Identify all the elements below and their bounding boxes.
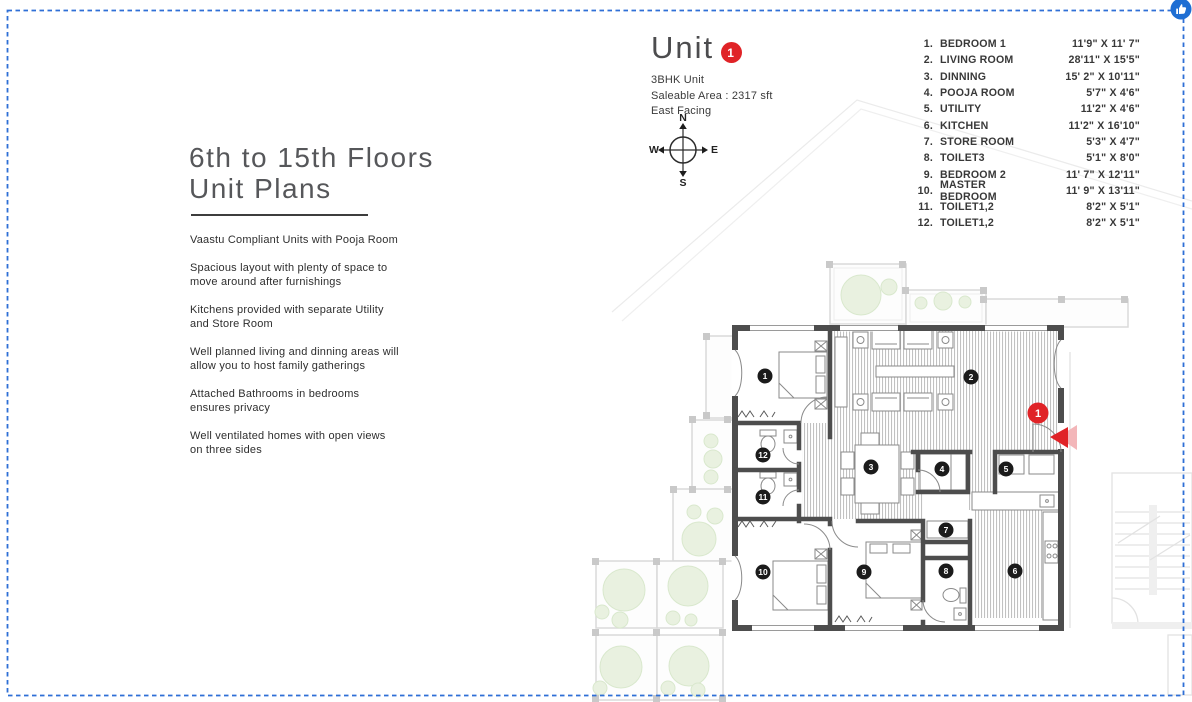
table-row: 1.BEDROOM 111'9" X 11' 7" <box>893 36 1140 52</box>
room-number: 1. <box>893 38 940 50</box>
room-number: 11. <box>893 201 940 213</box>
svg-text:6: 6 <box>1013 566 1018 576</box>
room-number: 9. <box>893 169 940 181</box>
svg-text:4: 4 <box>940 464 945 474</box>
room-name: LIVING ROOM <box>940 54 1045 66</box>
compass-icon: N S W E <box>647 110 719 188</box>
room-number: 5. <box>893 103 940 115</box>
room-number: 8. <box>893 152 940 164</box>
table-row: 10.MASTER BEDROOM11' 9" X 13'11" <box>893 183 1140 199</box>
svg-text:8: 8 <box>944 566 949 576</box>
room-name: POOJA ROOM <box>940 87 1045 99</box>
compass-east-label: E <box>711 144 718 156</box>
room-dims: 11'2" X 16'10" <box>1045 120 1140 132</box>
svg-text:1: 1 <box>763 371 768 381</box>
room-number: 2. <box>893 54 940 66</box>
room-name: MASTER BEDROOM <box>940 179 1045 203</box>
compass-north-label: N <box>679 112 687 124</box>
room-dims: 5'1" X 8'0" <box>1045 152 1140 164</box>
room-dims: 15' 2" X 10'11" <box>1045 71 1140 83</box>
room-name: BEDROOM 1 <box>940 38 1045 50</box>
unit-saleable-area: Saleable Area : 2317 sft <box>651 89 773 105</box>
table-row: 8.TOILET35'1" X 8'0" <box>893 150 1140 166</box>
room-dims: 28'11" X 15'5" <box>1045 54 1140 66</box>
room-number: 6. <box>893 120 940 132</box>
compass-west-label: W <box>649 144 659 156</box>
room-name: TOILET3 <box>940 152 1045 164</box>
stair-lobby <box>1070 352 1192 695</box>
room-name: TOILET1,2 <box>940 217 1045 229</box>
room-dims: 11' 9" X 13'11" <box>1045 185 1140 197</box>
floor-plan: 123456789101112 1 <box>590 258 1192 702</box>
room-dims: 5'3" X 4'7" <box>1045 136 1140 148</box>
room-name: STORE ROOM <box>940 136 1045 148</box>
room-name: DINNING <box>940 71 1045 83</box>
room-number: 4. <box>893 87 940 99</box>
svg-text:2: 2 <box>969 372 974 382</box>
room-number: 3. <box>893 71 940 83</box>
room-number: 7. <box>893 136 940 148</box>
table-row: 3.DINNING15' 2" X 10'11" <box>893 69 1140 85</box>
feature-item: Well planned living and dinning areas wi… <box>190 345 400 373</box>
svg-text:9: 9 <box>862 567 867 577</box>
table-row: 6.KITCHEN11'2" X 16'10" <box>893 117 1140 133</box>
svg-text:1: 1 <box>1035 408 1041 420</box>
svg-text:12: 12 <box>758 450 768 460</box>
brochure-page: { "colors": { "border_blue": "#2e6fd6", … <box>0 0 1192 702</box>
room-dims: 5'7" X 4'6" <box>1045 87 1140 99</box>
room-name: KITCHEN <box>940 120 1045 132</box>
room-number: 10. <box>893 185 940 197</box>
svg-text:10: 10 <box>758 567 768 577</box>
room-dims: 11'2" X 4'6" <box>1045 103 1140 115</box>
room-name: UTILITY <box>940 103 1045 115</box>
table-row: 12.TOILET1,28'2" X 5'1" <box>893 215 1140 231</box>
table-row: 4.POOJA ROOM5'7" X 4'6" <box>893 85 1140 101</box>
master-bedroom-furniture <box>773 549 828 610</box>
page-title: 6th to 15th Floors Unit Plans <box>189 142 434 204</box>
table-row: 11.TOILET1,28'2" X 5'1" <box>893 199 1140 215</box>
svg-text:11: 11 <box>759 492 768 502</box>
room-dims: 8'2" X 5'1" <box>1045 201 1140 213</box>
title-underline <box>191 214 368 216</box>
unit-header: Unit 1 3BHK Unit Saleable Area : 2317 sf… <box>651 30 773 120</box>
bedroom1-furniture <box>779 341 827 409</box>
room-name: TOILET1,2 <box>940 201 1045 213</box>
unit-type: 3BHK Unit <box>651 73 773 89</box>
room-dims: 11'9" X 11' 7" <box>1045 38 1140 50</box>
room-number: 12. <box>893 217 940 229</box>
table-row: 7.STORE ROOM5'3" X 4'7" <box>893 134 1140 150</box>
svg-text:5: 5 <box>1004 464 1009 474</box>
room-table: 1.BEDROOM 111'9" X 11' 7"2.LIVING ROOM28… <box>893 36 1140 232</box>
unit-title: Unit <box>651 30 714 66</box>
feature-list: Vaastu Compliant Units with Pooja RoomSp… <box>190 233 400 471</box>
svg-text:7: 7 <box>944 525 949 535</box>
feature-item: Attached Bathrooms in bedrooms ensures p… <box>190 387 400 415</box>
feature-item: Vaastu Compliant Units with Pooja Room <box>190 233 400 247</box>
bedroom2-furniture <box>866 530 922 610</box>
bookmark-badge-icon[interactable] <box>1169 0 1192 21</box>
compass-south-label: S <box>679 177 686 188</box>
unit-number-badge: 1 <box>721 42 742 63</box>
feature-item: Well ventilated homes with open views on… <box>190 429 400 457</box>
feature-item: Spacious layout with plenty of space to … <box>190 261 400 289</box>
table-row: 2.LIVING ROOM28'11" X 15'5" <box>893 52 1140 68</box>
room-dims: 8'2" X 5'1" <box>1045 217 1140 229</box>
svg-text:3: 3 <box>869 462 874 472</box>
table-row: 5.UTILITY11'2" X 4'6" <box>893 101 1140 117</box>
room-dims: 11' 7" X 12'11" <box>1045 169 1140 181</box>
feature-item: Kitchens provided with separate Utility … <box>190 303 400 331</box>
